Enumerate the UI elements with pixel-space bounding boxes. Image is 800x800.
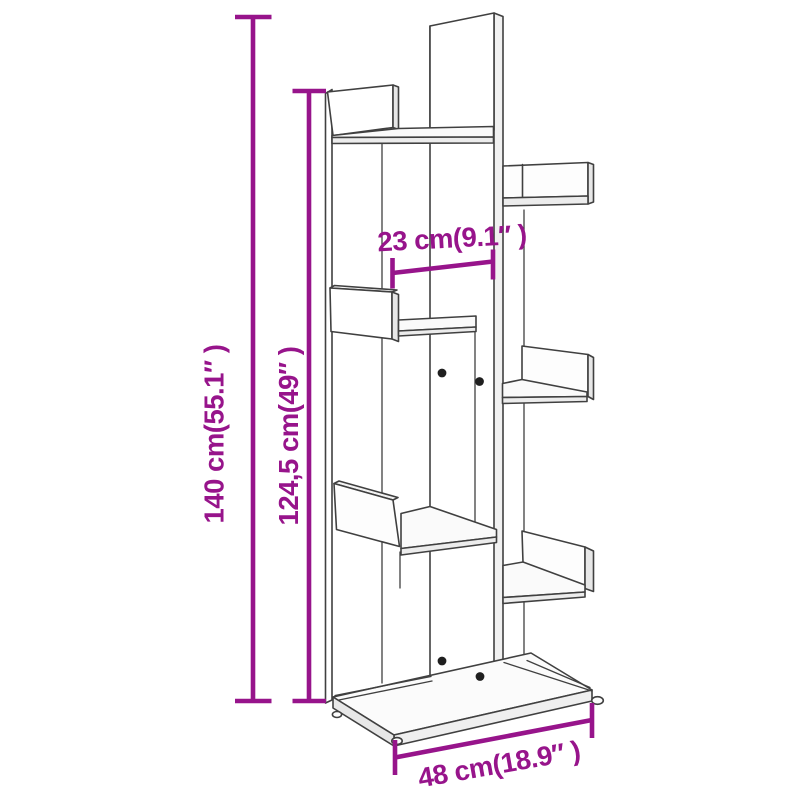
bookshelf-dimension-diagram: 140 cm(55.1″ ) 124,5 cm(49″ ) 23 cm(9.1″…	[0, 0, 800, 800]
shelf-middle-left	[330, 286, 476, 342]
shelf-top-right	[503, 163, 594, 207]
base-plinth	[332, 653, 603, 746]
shelf-lower-right	[503, 531, 594, 604]
foot-back-left	[332, 712, 341, 718]
left-side-panel	[326, 90, 333, 704]
right-side-panel	[494, 13, 503, 687]
dimension-line	[393, 262, 494, 274]
dimension-label-base-width: 48 cm(18.9″ )	[415, 734, 582, 793]
shelf-middle-right	[503, 346, 594, 404]
dimension-total-height	[235, 17, 272, 701]
dimension-label-compartment-width: 23 cm(9.1″ )	[377, 219, 528, 258]
top-back-panel	[430, 13, 494, 135]
diagram-canvas: 140 cm(55.1″ ) 124,5 cm(49″ ) 23 cm(9.1″…	[0, 0, 800, 800]
shelf-lower-left	[334, 481, 497, 555]
dimension-label-total-height: 140 cm(55.1″ )	[199, 345, 230, 524]
bookshelf-drawing	[326, 13, 604, 746]
dimension-label-side-height: 124,5 cm(49″ )	[273, 347, 304, 526]
